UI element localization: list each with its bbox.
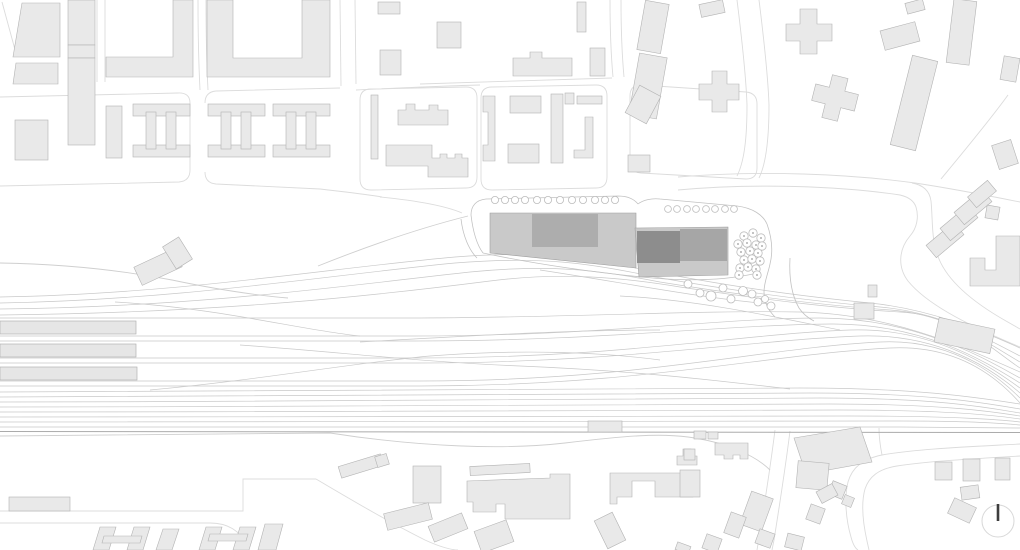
rail-track <box>0 276 1020 368</box>
building <box>208 104 265 116</box>
platforms-layer <box>0 321 137 380</box>
building <box>286 112 296 149</box>
building <box>684 449 695 460</box>
proposal-mass <box>532 214 598 247</box>
building <box>102 536 142 543</box>
building <box>880 22 920 51</box>
tree-trunk-dot <box>752 232 754 234</box>
building <box>1000 56 1020 82</box>
building <box>694 431 706 439</box>
building <box>428 513 468 542</box>
rail-track <box>0 410 1020 419</box>
building <box>13 63 58 84</box>
building <box>590 48 605 76</box>
building <box>208 534 248 541</box>
buildings-layer <box>9 0 1020 550</box>
building <box>483 96 495 161</box>
building <box>960 485 980 500</box>
building <box>963 459 980 481</box>
tree-trunk-dot <box>751 258 753 260</box>
building <box>905 0 925 14</box>
tree <box>601 196 608 203</box>
building <box>796 461 829 491</box>
tree <box>767 302 775 310</box>
building <box>208 145 265 157</box>
rail-track <box>115 302 360 336</box>
proposal-building <box>490 213 728 277</box>
site-boundary-line <box>638 199 767 224</box>
road <box>610 0 613 77</box>
tree <box>739 287 748 296</box>
building <box>985 205 1000 220</box>
building <box>513 52 572 76</box>
rail-track <box>0 432 1020 433</box>
rail-track <box>0 324 1020 383</box>
building <box>68 58 95 145</box>
building <box>386 145 468 177</box>
road <box>355 0 356 84</box>
building <box>724 512 747 538</box>
building <box>675 542 691 550</box>
building <box>146 112 156 149</box>
building <box>371 95 378 159</box>
site-boundary-line <box>471 215 483 253</box>
building <box>935 462 952 480</box>
road <box>380 197 462 213</box>
building <box>398 104 448 125</box>
tree-trunk-dot <box>755 244 757 246</box>
rail-track <box>240 345 790 389</box>
building <box>574 117 593 158</box>
building <box>306 112 316 149</box>
building <box>13 3 60 57</box>
road <box>340 0 341 86</box>
building <box>508 144 539 163</box>
tree <box>491 196 498 203</box>
platform <box>0 344 136 357</box>
tree-trunk-dot <box>756 274 758 276</box>
tree <box>706 291 716 301</box>
building <box>708 432 718 439</box>
tree-trunk-dot <box>760 237 762 239</box>
building <box>946 0 977 65</box>
building <box>740 491 774 532</box>
building <box>628 155 650 172</box>
building <box>510 96 541 113</box>
building <box>785 533 805 550</box>
tree <box>696 289 704 297</box>
building <box>680 470 700 497</box>
building <box>699 0 725 17</box>
site-plan-canvas <box>0 0 1020 550</box>
building <box>577 2 586 32</box>
building <box>378 2 400 14</box>
building <box>413 466 441 503</box>
building <box>637 0 669 53</box>
site-boundary-line <box>461 219 477 258</box>
tree-trunk-dot <box>759 260 761 262</box>
building <box>68 45 95 58</box>
tree <box>727 295 735 303</box>
building <box>588 421 622 432</box>
tree-trunk-dot <box>755 268 757 270</box>
tree <box>501 196 508 203</box>
tree <box>674 206 681 213</box>
building <box>166 112 176 149</box>
building <box>551 94 563 163</box>
tree <box>544 196 551 203</box>
building <box>841 494 854 507</box>
building <box>806 504 826 524</box>
building <box>384 503 433 531</box>
tree <box>684 280 692 288</box>
tree <box>754 298 762 306</box>
building <box>699 71 739 112</box>
rail-track <box>0 318 1020 378</box>
building <box>992 140 1019 170</box>
tree-trunk-dot <box>746 242 748 244</box>
tree <box>684 206 691 213</box>
building <box>241 112 251 149</box>
tree <box>511 196 518 203</box>
road <box>621 0 624 77</box>
tree-trunk-dot <box>738 274 740 276</box>
tree-trunk-dot <box>749 250 751 252</box>
road <box>420 78 612 84</box>
building <box>437 22 461 48</box>
tree-trunk-dot <box>747 266 749 268</box>
tree <box>722 206 729 213</box>
tree <box>762 296 769 303</box>
tree <box>665 206 672 213</box>
building <box>808 71 861 124</box>
building <box>258 524 283 550</box>
road <box>941 95 1008 179</box>
building <box>273 145 330 157</box>
tree <box>712 206 719 213</box>
rail-track <box>0 427 1020 428</box>
tree <box>611 196 618 203</box>
building <box>890 55 937 151</box>
tree <box>591 196 598 203</box>
building <box>133 104 190 116</box>
building <box>715 443 748 459</box>
building <box>156 529 179 550</box>
building <box>106 106 122 158</box>
building <box>133 145 190 157</box>
building <box>948 498 977 524</box>
road <box>205 88 340 103</box>
platform <box>0 321 136 334</box>
building <box>868 285 877 297</box>
building <box>702 534 722 550</box>
building <box>474 520 514 550</box>
north-arrow-needle <box>997 504 1000 521</box>
building <box>207 0 330 77</box>
tree <box>748 290 756 298</box>
building <box>577 96 602 104</box>
building <box>106 0 193 77</box>
building <box>467 474 570 519</box>
tree <box>568 196 575 203</box>
tree-trunk-dot <box>743 235 745 237</box>
proposal-mass <box>680 229 727 261</box>
tree <box>521 196 528 203</box>
proposal-mass <box>637 231 680 263</box>
platform <box>0 367 137 380</box>
building <box>15 120 48 160</box>
building <box>970 236 1020 286</box>
tree-trunk-dot <box>761 245 763 247</box>
building <box>995 458 1010 480</box>
tree-trunk-dot <box>737 243 739 245</box>
railway-layer <box>0 254 1020 432</box>
tree-trunk-dot <box>757 252 759 254</box>
building <box>273 104 330 116</box>
tree <box>703 206 710 213</box>
building <box>221 112 231 149</box>
building <box>786 9 832 54</box>
road <box>846 444 1020 550</box>
road <box>772 431 790 550</box>
building <box>565 93 574 104</box>
building <box>68 0 95 45</box>
rail-track <box>0 421 1020 425</box>
tree-trunk-dot <box>740 251 742 253</box>
road <box>759 0 769 178</box>
road <box>198 0 200 90</box>
tree <box>693 206 700 213</box>
tree <box>579 196 586 203</box>
tree-trunk-dot <box>743 259 745 261</box>
tree <box>556 196 563 203</box>
boundary-line <box>318 216 468 266</box>
tree <box>719 284 727 292</box>
tree-trunk-dot <box>739 267 741 269</box>
tree <box>731 206 738 213</box>
building <box>470 463 530 475</box>
site-plan <box>0 0 1020 550</box>
building <box>594 512 626 549</box>
tree <box>533 196 540 203</box>
building <box>380 50 401 75</box>
road <box>205 172 382 197</box>
building <box>854 303 874 319</box>
north-arrow-icon <box>982 504 1014 537</box>
building <box>9 497 70 511</box>
